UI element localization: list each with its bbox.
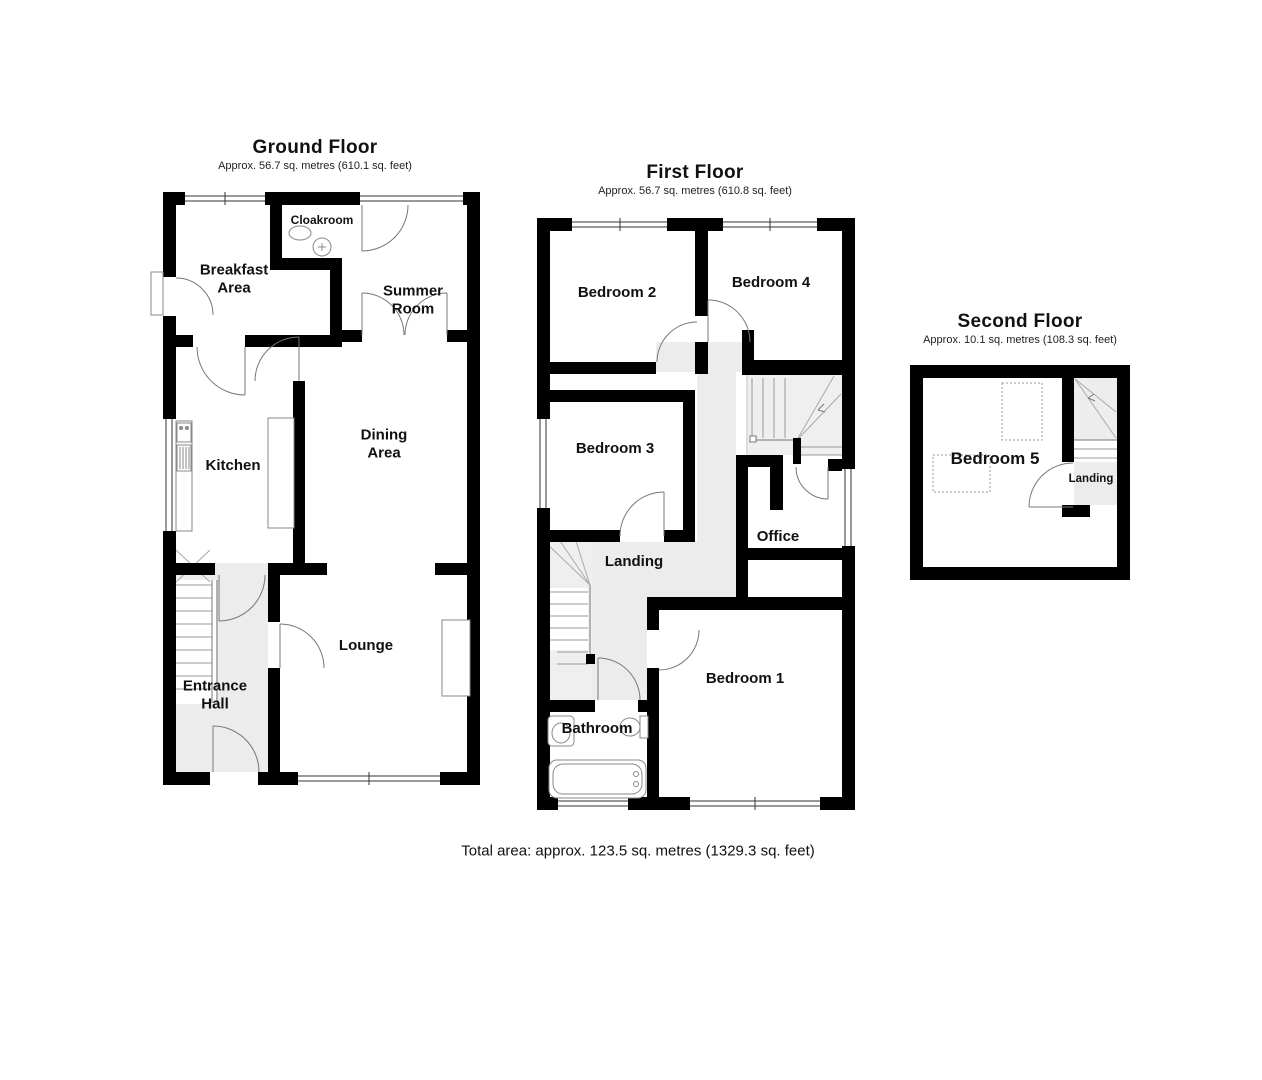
room-label-bathroom: Bathroom [562,720,633,738]
room-label-landing-second: Landing [1069,473,1114,487]
ground-floor-fills [176,563,268,772]
room-label-bedroom-4: Bedroom 4 [732,274,810,292]
first-floor-area: Approx. 56.7 sq. metres (610.8 sq. feet) [598,185,792,197]
room-label-breakfast-area: Breakfast Area [200,261,268,296]
ground-floor-title: Ground Floor [253,137,378,159]
total-area-caption: Total area: approx. 123.5 sq. metres (13… [461,843,815,860]
room-label-kitchen: Kitchen [205,457,260,475]
room-label-dining-area: Dining Area [361,426,408,461]
room-label-lounge: Lounge [339,637,393,655]
floorplan-page: Ground Floor Approx. 56.7 sq. metres (61… [0,0,1262,1080]
room-label-bedroom-1: Bedroom 1 [706,670,784,688]
room-label-summer-room: Summer Room [383,282,443,317]
room-label-entrance-hall: Entrance Hall [183,677,247,712]
room-label-bedroom-3: Bedroom 3 [576,440,654,458]
room-label-bedroom-2: Bedroom 2 [578,284,656,302]
first-floor-title: First Floor [646,162,743,184]
second-floor-area: Approx. 10.1 sq. metres (108.3 sq. feet) [923,334,1117,346]
floorplan-canvas [0,0,1262,1080]
room-label-office: Office [757,528,800,546]
ground-floor-area: Approx. 56.7 sq. metres (610.1 sq. feet) [218,160,412,172]
second-doors [1029,463,1073,507]
room-label-bedroom-5: Bedroom 5 [951,449,1040,469]
room-label-cloakroom: Cloakroom [291,213,354,227]
second-restricted-height-outlines [933,383,1042,492]
second-floor-title: Second Floor [958,311,1083,333]
room-label-landing-first: Landing [605,553,663,571]
